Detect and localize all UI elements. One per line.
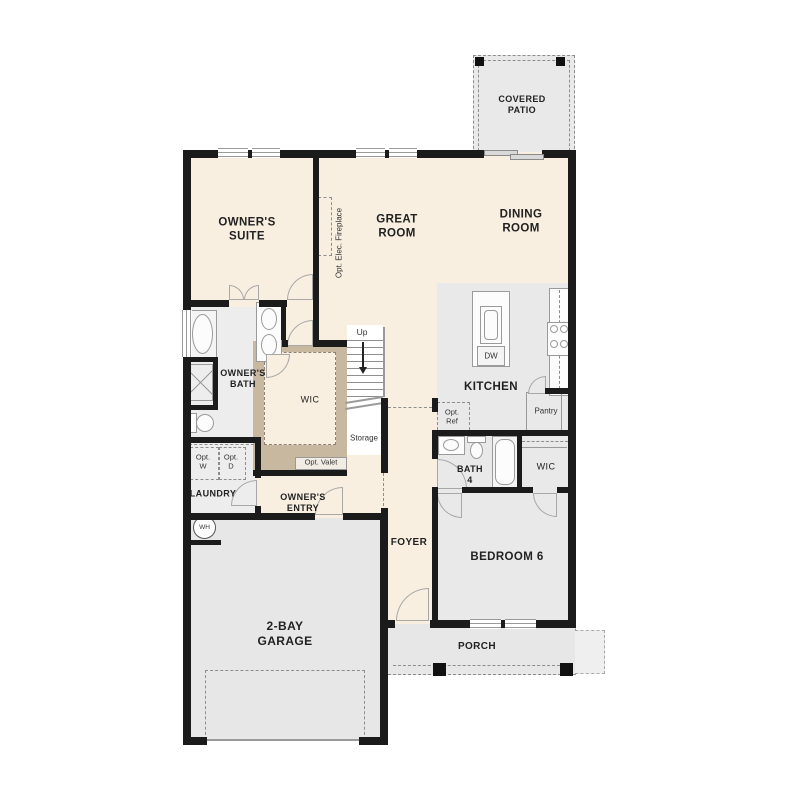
wall-bath4-bottom-2 <box>557 487 572 493</box>
wall-tub-divider <box>185 357 216 362</box>
garage-door-line <box>205 739 363 741</box>
wall-bedroom-left <box>432 487 438 624</box>
dishwasher-label: DW <box>484 351 497 360</box>
bedroom-wic-label: WIC <box>537 461 556 472</box>
stair-arrow-icon <box>359 367 367 374</box>
window-bedroom6-1 <box>470 619 501 629</box>
water-heater-label: WH <box>199 524 210 531</box>
wall-kitchen-left <box>432 398 438 412</box>
garage-door-outline <box>205 670 365 740</box>
porch-post-left <box>433 663 446 676</box>
great-room-label: GREAT ROOM <box>376 213 417 242</box>
opt-washer-label: Opt. W <box>196 453 210 470</box>
wall-stairs-right-2 <box>381 508 388 518</box>
vanity-sink-1 <box>261 308 277 330</box>
bath4-toilet-bowl <box>470 442 483 459</box>
owners-bath-label: OWNER'S BATH <box>220 368 265 391</box>
owners-toilet-bowl <box>196 414 214 432</box>
bedroom-wic-shelf-line <box>522 447 567 448</box>
entry-hall-opening <box>383 473 384 511</box>
wall-garage-bottom-left <box>183 737 207 745</box>
window-great-1 <box>356 148 385 158</box>
opt-valet-label: Opt. Valet <box>305 459 338 468</box>
porch-post-right <box>560 663 573 676</box>
opt-fireplace-box <box>318 197 332 256</box>
wall-suite-bottom-3 <box>313 300 319 307</box>
owners-wic-label: WIC <box>301 394 320 405</box>
window-bath-left <box>182 310 192 357</box>
stairs-up-label: Up <box>357 328 368 338</box>
wall-vanity-right <box>281 307 286 340</box>
wall-suite-bottom-2 <box>259 300 287 307</box>
wall-bath4-top <box>432 430 572 436</box>
wall-wic-top-left <box>282 340 288 347</box>
floorplan-canvas: COVERED PATIO Opt. Valet Up Storage Opt.… <box>0 0 810 810</box>
dining-room-label: DINING ROOM <box>500 208 543 237</box>
porch-inner-dash <box>393 665 565 666</box>
wall-bottom-4 <box>536 620 576 628</box>
wall-suite-right <box>313 152 319 307</box>
storage-label: Storage <box>350 433 378 442</box>
opt-ref-label: Opt. Ref <box>445 408 459 425</box>
owners-shower <box>188 364 213 401</box>
wall-shower-right <box>213 357 218 410</box>
patio-post-left <box>475 57 484 66</box>
owners-suite-label: OWNER'S SUITE <box>218 216 275 245</box>
garage-label: 2-BAY GARAGE <box>257 619 312 649</box>
opt-dryer-label: Opt. D <box>224 453 238 470</box>
wall-bath4-wic-divider <box>517 433 522 493</box>
wall-wic-top-right <box>313 340 347 347</box>
wall-stairs-right-1 <box>381 398 388 473</box>
vanity-sink-2 <box>261 334 277 356</box>
foyer-label: FOYER <box>391 537 427 550</box>
wall-toilet-top <box>185 405 215 410</box>
porch-step <box>575 630 605 674</box>
bedroom-wic-shelf-dash <box>522 441 568 442</box>
wall-garage-left <box>183 513 191 745</box>
pantry-label: Pantry <box>534 406 557 415</box>
wall-bottom-1 <box>387 620 395 628</box>
window-great-2 <box>389 148 417 158</box>
window-suite-2 <box>252 148 280 158</box>
laundry-label: LAUNDRY <box>190 488 236 499</box>
burner-2 <box>560 325 568 333</box>
wall-bath4-bottom-1 <box>462 487 533 493</box>
wall-corridor-right <box>313 307 319 340</box>
wall-suite-bottom-1 <box>183 300 229 307</box>
window-bedroom6-2 <box>505 619 536 629</box>
laundry-counter-dash <box>189 444 254 445</box>
wall-bath4-left <box>432 433 438 459</box>
covered-patio-label: COVERED PATIO <box>498 94 545 117</box>
porch-label: PORCH <box>458 641 496 654</box>
wall-garage-right <box>380 513 388 745</box>
owners-tub-basin <box>192 314 213 354</box>
burner-4 <box>560 340 568 348</box>
wall-wh-nook <box>183 540 221 545</box>
owners-entry-label: OWNER'S ENTRY <box>280 492 325 515</box>
great-foyer-opening <box>388 407 432 408</box>
wall-bath-bottom <box>183 437 259 443</box>
patio-slider-panel-2 <box>510 154 544 160</box>
burner-1 <box>550 325 558 333</box>
wall-pantry-top <box>545 388 572 394</box>
bedroom6-label: BEDROOM 6 <box>470 550 543 564</box>
island-sink-basin <box>484 310 498 340</box>
patio-post-right <box>556 57 565 66</box>
window-suite-1 <box>218 148 248 158</box>
burner-3 <box>550 340 558 348</box>
bath4-tub-basin <box>495 439 515 485</box>
stair-rail-line <box>383 327 385 397</box>
wall-entry-top <box>253 470 347 476</box>
bath4-sink <box>443 439 459 451</box>
opt-fireplace-label: Opt. Elec. Fireplace <box>335 208 344 278</box>
stair-direction-line <box>362 342 364 368</box>
bath4-label: BATH 4 <box>457 464 483 487</box>
kitchen-label: KITCHEN <box>464 380 518 394</box>
